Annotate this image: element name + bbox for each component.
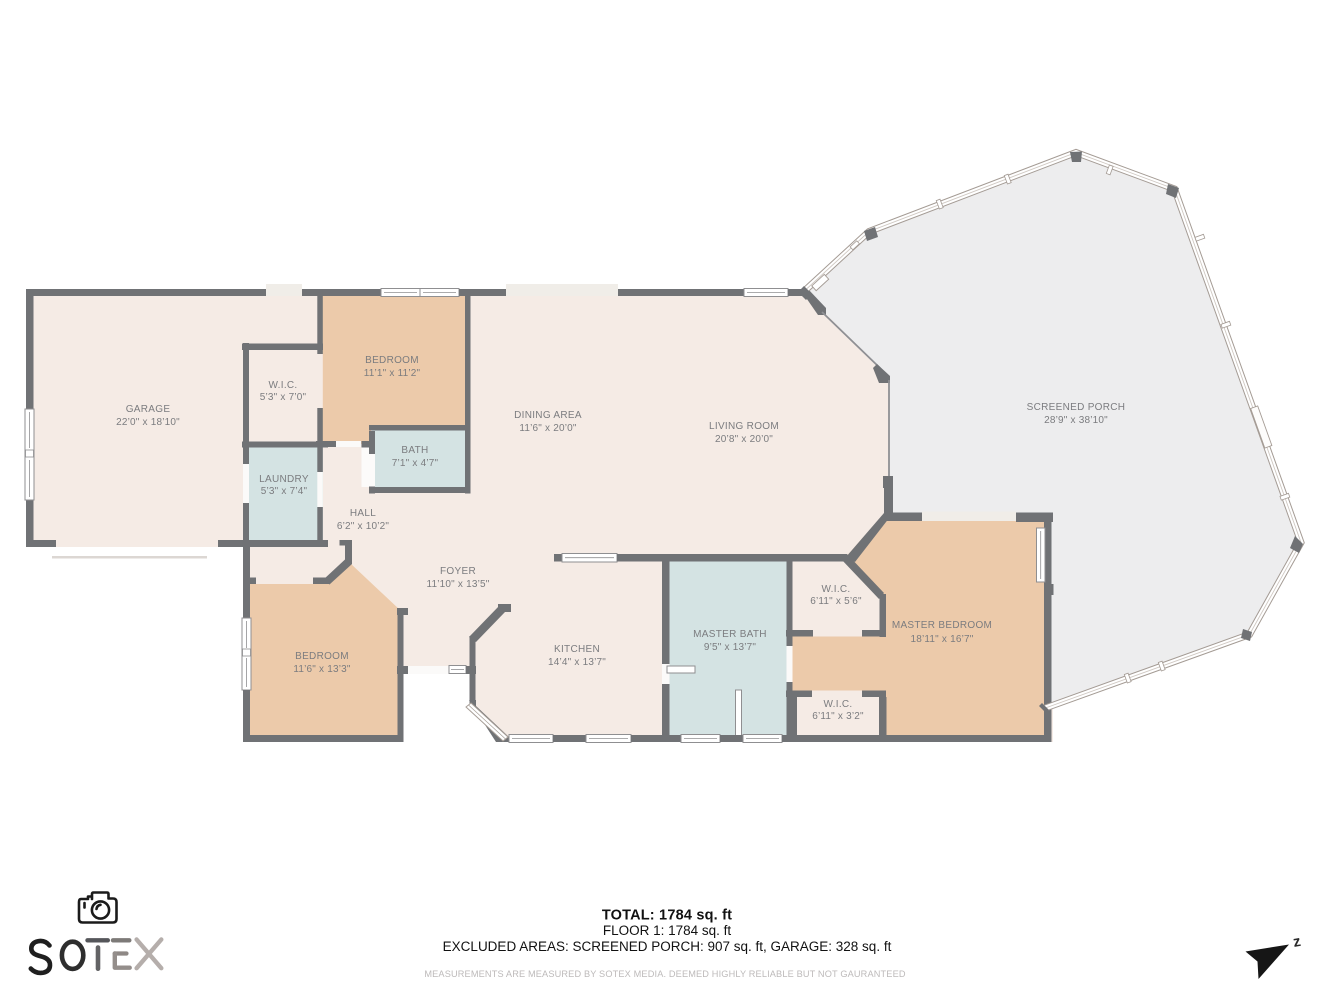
svg-text:BEDROOM: BEDROOM	[365, 355, 419, 366]
svg-text:6’2" x 10’2": 6’2" x 10’2"	[337, 521, 390, 532]
svg-text:GARAGE: GARAGE	[126, 404, 171, 415]
svg-text:MEASUREMENTS ARE MEASURED BY S: MEASUREMENTS ARE MEASURED BY SOTEX MEDIA…	[424, 969, 905, 979]
svg-text:W.I.C.: W.I.C.	[268, 380, 297, 391]
svg-text:EXCLUDED AREAS: SCREENED PORCH: EXCLUDED AREAS: SCREENED PORCH: 907 sq. …	[443, 939, 892, 954]
svg-text:W.I.C.: W.I.C.	[821, 584, 850, 595]
svg-text:18’11" x 16’7": 18’11" x 16’7"	[910, 634, 973, 645]
svg-text:6’11" x 5’6": 6’11" x 5’6"	[810, 596, 862, 607]
svg-text:11’6" x 20’0": 11’6" x 20’0"	[519, 423, 577, 434]
svg-text:5’3" x 7’0": 5’3" x 7’0"	[260, 392, 307, 403]
svg-text:KITCHEN: KITCHEN	[554, 644, 600, 655]
svg-text:11’10" x 13’5": 11’10" x 13’5"	[426, 579, 489, 590]
svg-text:LAUNDRY: LAUNDRY	[259, 474, 309, 485]
svg-text:6’11" x 3’2": 6’11" x 3’2"	[812, 711, 864, 722]
svg-text:SCREENED PORCH: SCREENED PORCH	[1027, 402, 1126, 413]
svg-text:BATH: BATH	[401, 445, 428, 456]
svg-text:FLOOR 1: 1784 sq. ft: FLOOR 1: 1784 sq. ft	[603, 923, 732, 938]
svg-text:11’6" x 13’3": 11’6" x 13’3"	[293, 664, 351, 675]
svg-text:HALL: HALL	[350, 508, 376, 519]
svg-text:z: z	[1292, 933, 1302, 951]
svg-text:20’8" x 20’0": 20’8" x 20’0"	[715, 434, 773, 445]
svg-text:14’4" x 13’7": 14’4" x 13’7"	[548, 657, 606, 668]
svg-text:9’5" x 13’7": 9’5" x 13’7"	[704, 642, 757, 653]
svg-text:LIVING ROOM: LIVING ROOM	[709, 421, 779, 432]
svg-text:MASTER BEDROOM: MASTER BEDROOM	[892, 620, 992, 631]
svg-text:FOYER: FOYER	[440, 566, 476, 577]
svg-text:7’1" x 4’7": 7’1" x 4’7"	[392, 458, 439, 469]
svg-text:DINING AREA: DINING AREA	[514, 410, 582, 421]
svg-text:28’9" x 38’10": 28’9" x 38’10"	[1044, 415, 1108, 426]
svg-text:W.I.C.: W.I.C.	[823, 699, 852, 710]
svg-text:22’0" x 18’10": 22’0" x 18’10"	[116, 417, 180, 428]
svg-text:5’3" x 7’4": 5’3" x 7’4"	[261, 486, 308, 497]
svg-text:TOTAL: 1784 sq. ft: TOTAL: 1784 sq. ft	[602, 908, 732, 924]
svg-text:BEDROOM: BEDROOM	[295, 651, 349, 662]
svg-text:MASTER BATH: MASTER BATH	[693, 629, 767, 640]
svg-text:11’1" x 11’2": 11’1" x 11’2"	[364, 368, 421, 379]
